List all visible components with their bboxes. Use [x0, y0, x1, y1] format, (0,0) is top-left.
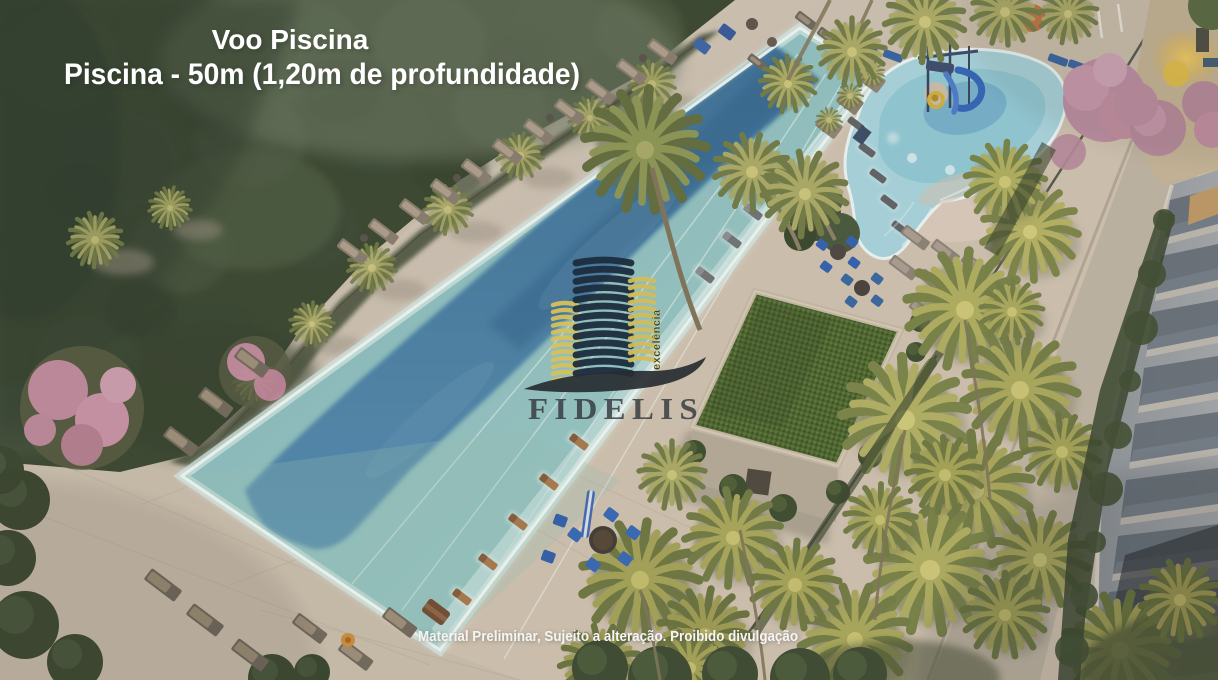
- svg-text:Material Preliminar, Sujeito a: Material Preliminar, Sujeito a alteração…: [418, 628, 798, 645]
- svg-text:Voo Piscina: Voo Piscina: [212, 24, 369, 55]
- svg-text:Piscina - 50m (1,20m de profun: Piscina - 50m (1,20m de profundidade): [64, 58, 580, 91]
